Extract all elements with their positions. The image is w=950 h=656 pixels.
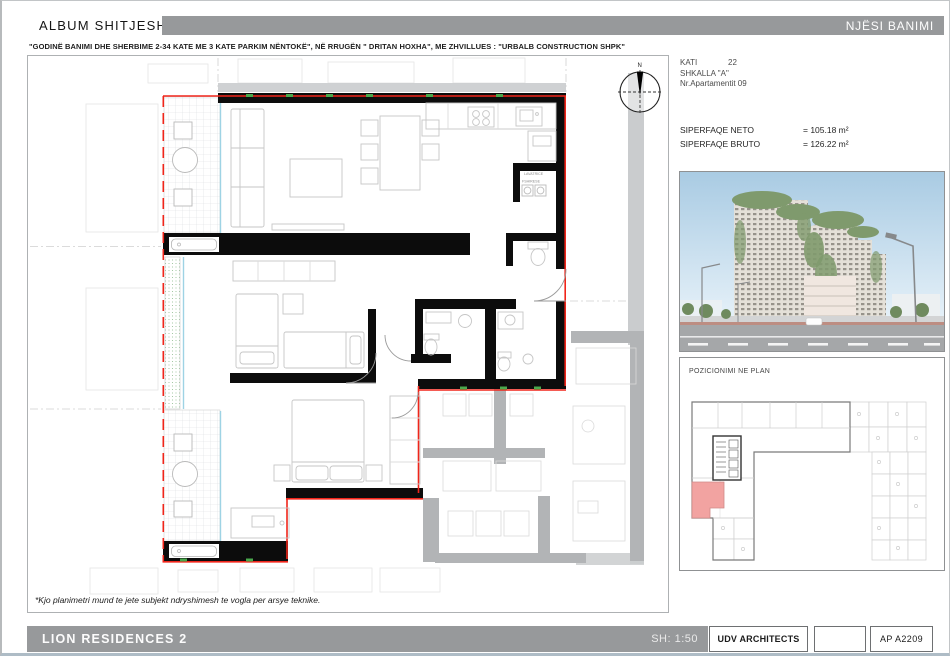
scale-label: SH: 1:50 (651, 626, 698, 652)
project-name: LION RESIDENCES 2 (42, 626, 187, 652)
floor-plan-drawing: LAVATRICE FSHIRESE N (28, 56, 668, 612)
context-faint-lines (86, 58, 525, 594)
keyplan-light-units (713, 402, 926, 560)
furniture (231, 103, 556, 538)
bruto-value: = 126.22 m² (803, 138, 849, 152)
unit-info-block: KATI 22 SHKALLA "A" Nr.Apartamentit 09 (680, 58, 747, 90)
building-render-panel (679, 171, 945, 352)
plan-footnote: *Kjo planimetri mund te jete subjekt ndr… (35, 595, 320, 605)
street (680, 316, 944, 351)
keyplan-drawing: POZICIONIMI NE PLAN (680, 358, 944, 570)
exterior-wall-hatch (165, 257, 180, 409)
keyplan-highlighted-unit (692, 482, 724, 518)
balcony-bottom (164, 410, 220, 541)
footer-bar: LION RESIDENCES 2 SH: 1:50 (27, 626, 708, 652)
plan-labels: LAVATRICE FSHIRESE (522, 172, 544, 184)
keyplan-panel: POZICIONIMI NE PLAN (679, 357, 945, 571)
north-label: N (638, 63, 642, 69)
empty-title-box (814, 626, 866, 652)
neto-label: SIPERFAQE NETO (680, 124, 803, 138)
kati-label: KATI (680, 58, 728, 69)
sales-album-sheet: ALBUM SHITJESH NJËSI BANIMI "GODINË BANI… (0, 0, 950, 656)
architects-label: UDV ARCHITECTS (718, 634, 800, 644)
sheet-number-box: AP A2209 (870, 626, 933, 652)
project-subtitle: "GODINË BANIMI DHE SHERBIME 2-34 KATE ME… (29, 42, 625, 51)
keyplan-title: POZICIONIMI NE PLAN (689, 368, 770, 375)
bruto-label: SIPERFAQE BRUTO (680, 138, 803, 152)
north-compass: N (618, 63, 662, 114)
balcony-top (164, 97, 220, 233)
keyplan-core (713, 436, 741, 480)
lavatrice-label: LAVATRICE (524, 172, 544, 176)
building-render-illustration (680, 172, 944, 351)
car (806, 318, 822, 325)
apartment-number-label: Nr.Apartamentit 09 (680, 79, 747, 90)
podium-building (804, 276, 856, 322)
architects-box: UDV ARCHITECTS (709, 626, 808, 652)
floor-plan-panel: LAVATRICE FSHIRESE N *Kjo planimetri mun… (27, 55, 669, 613)
area-block: SIPERFAQE NETO = 105.18 m² SIPERFAQE BRU… (680, 124, 849, 151)
shkalla-label: SHKALLA "A" (680, 69, 729, 80)
page-title: ALBUM SHITJESH (39, 18, 167, 33)
sheet-number-label: AP A2209 (880, 634, 923, 644)
neto-value: = 105.18 m² (803, 124, 849, 138)
header-bar: NJËSI BANIMI (162, 16, 944, 35)
unit-banner-label: NJËSI BANIMI (846, 19, 934, 33)
adjacent-unit (423, 331, 644, 563)
fshirese-label: FSHIRESE (522, 180, 541, 184)
kati-value: 22 (728, 58, 737, 69)
